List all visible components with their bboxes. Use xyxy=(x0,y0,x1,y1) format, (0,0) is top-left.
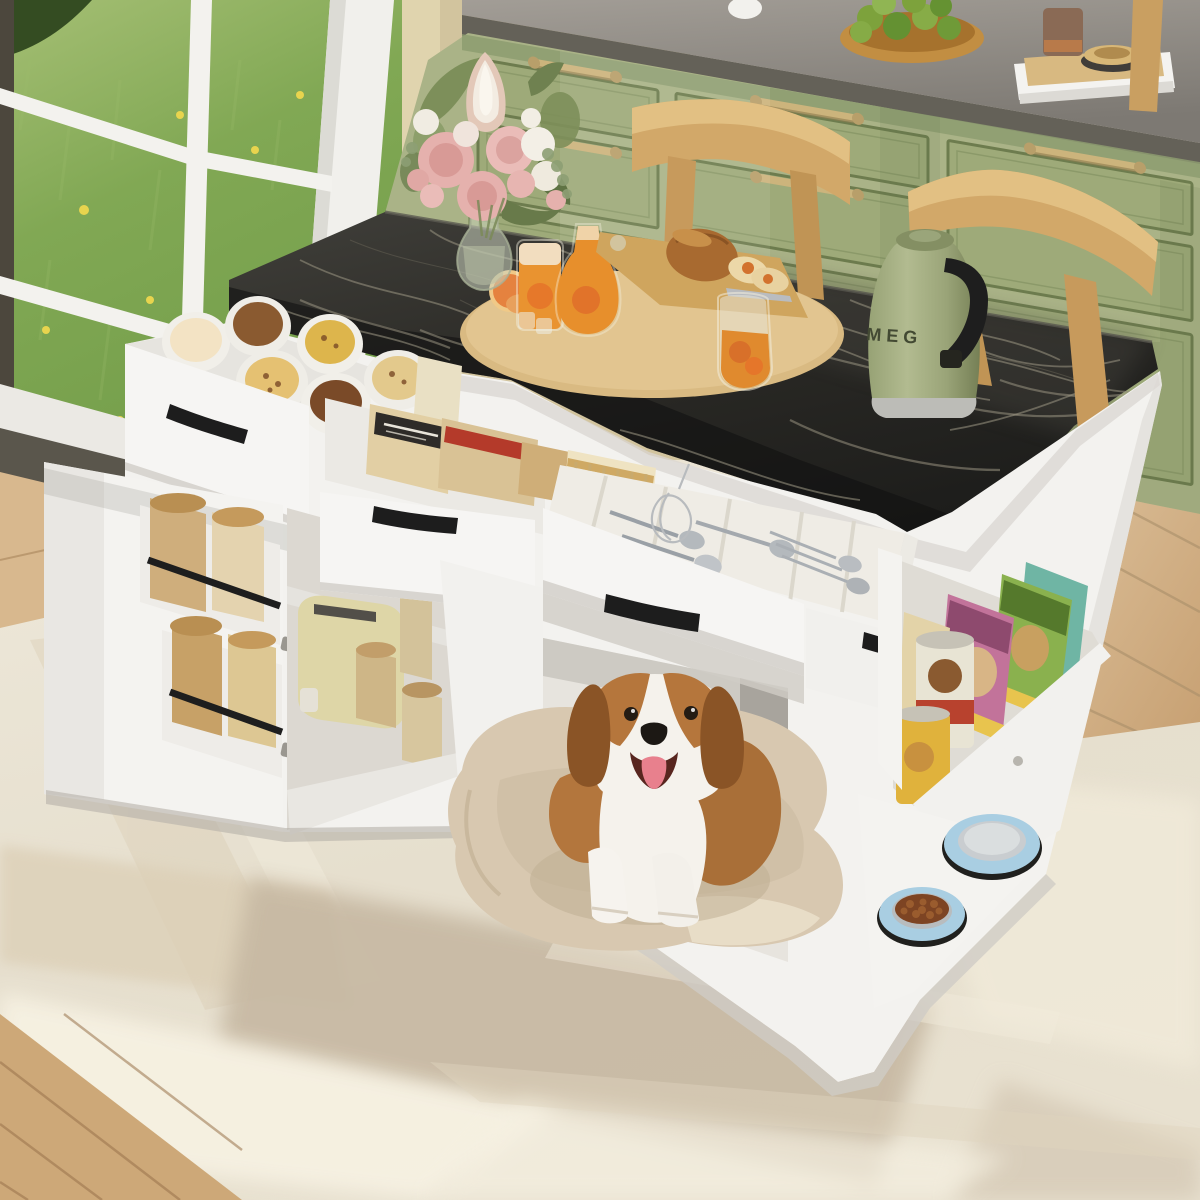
svg-text:MEG: MEG xyxy=(866,324,923,348)
